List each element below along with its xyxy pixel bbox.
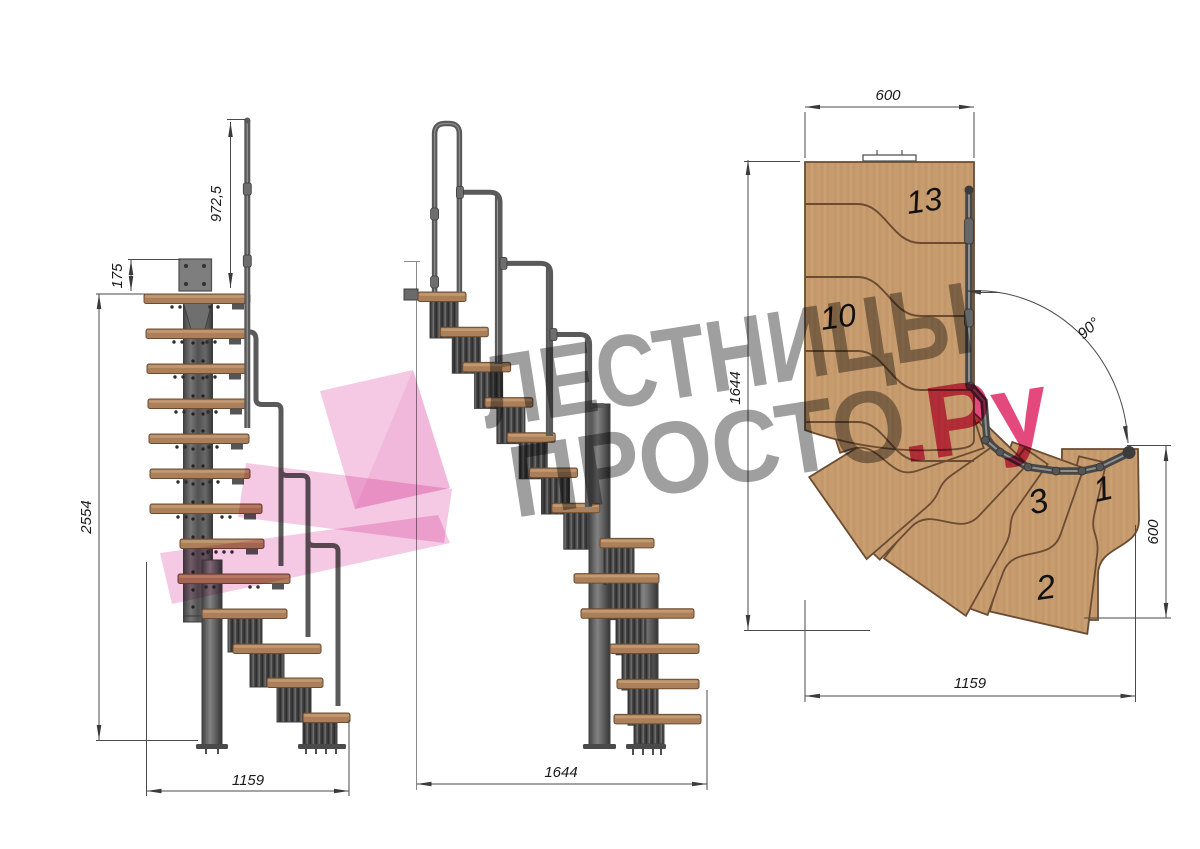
svg-text:1159: 1159	[954, 675, 987, 692]
svg-text:600: 600	[1145, 519, 1162, 545]
svg-text:.Ру: .Ру	[890, 349, 1056, 485]
svg-text:600: 600	[875, 87, 901, 104]
svg-text:175: 175	[109, 263, 126, 289]
svg-text:13: 13	[904, 180, 944, 221]
svg-text:1644: 1644	[544, 764, 577, 781]
svg-text:972,5: 972,5	[208, 185, 225, 222]
svg-text:2554: 2554	[78, 500, 95, 534]
svg-text:1159: 1159	[232, 772, 265, 789]
